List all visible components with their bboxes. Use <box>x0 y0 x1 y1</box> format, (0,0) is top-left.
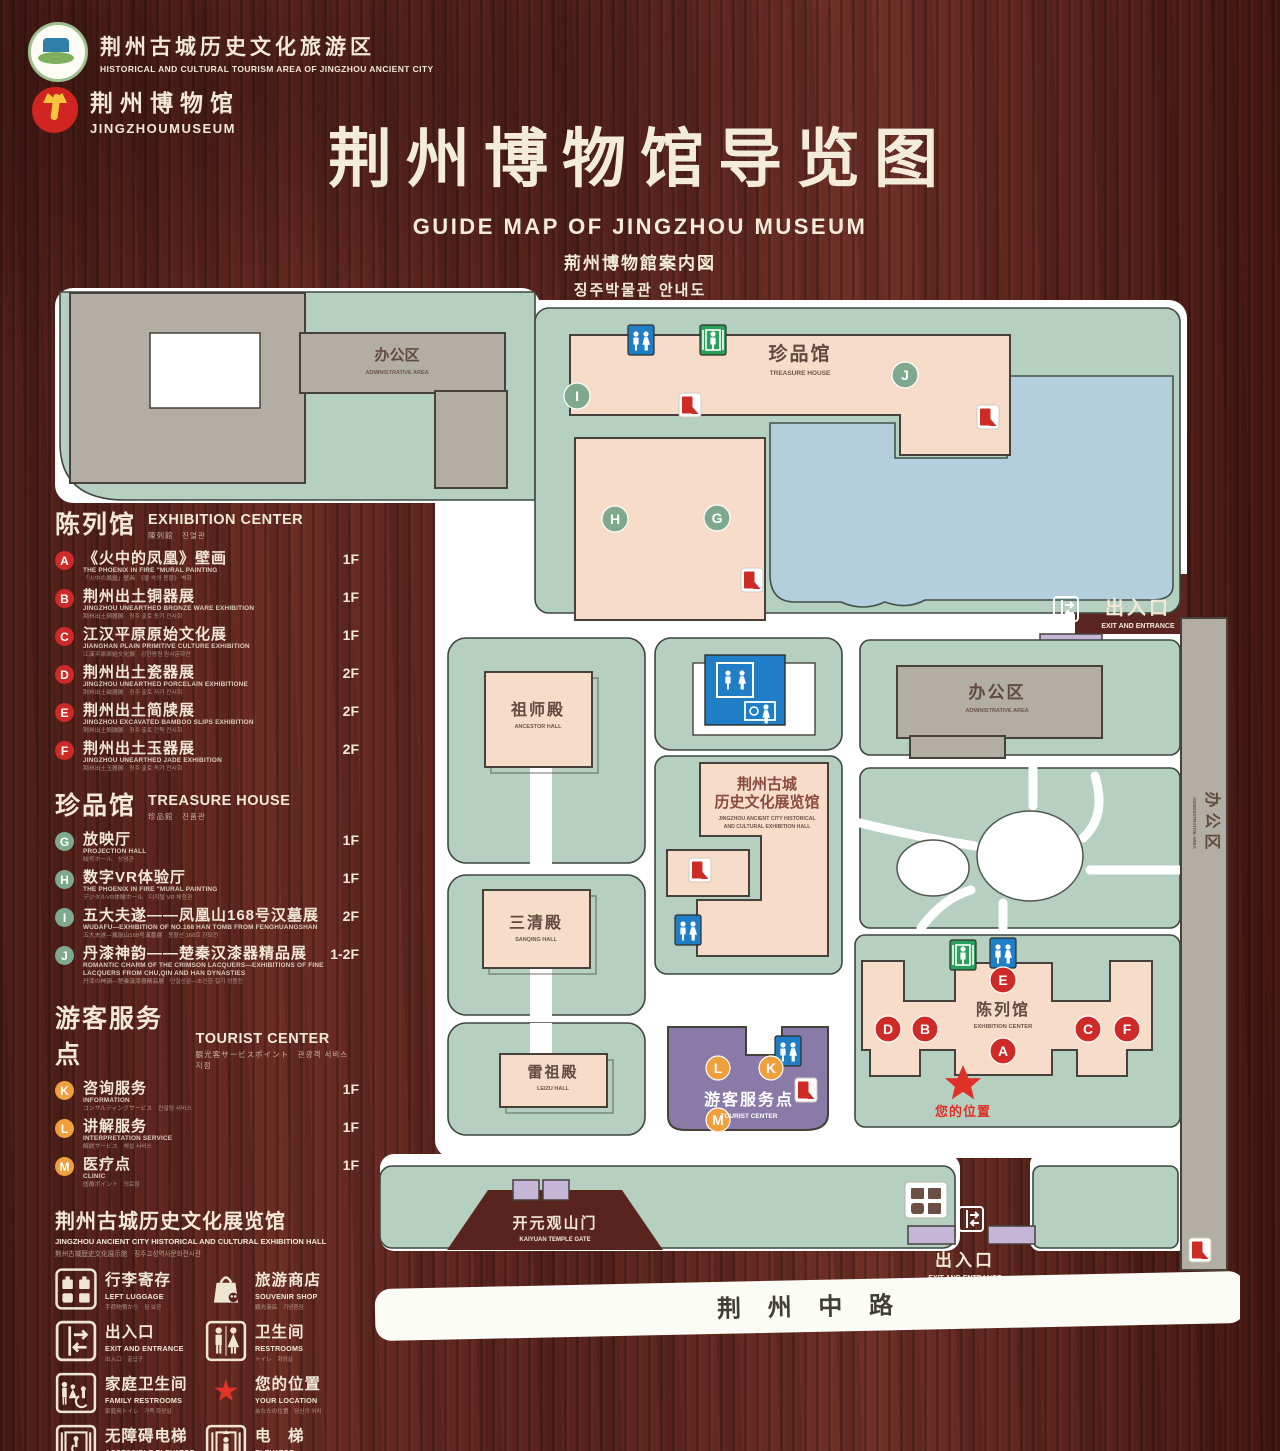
svg-text:J: J <box>901 367 909 383</box>
svg-text:开元观山门: 开元观山门 <box>512 1214 597 1232</box>
tourism-area-title: 荆州古城历史文化旅游区 <box>100 31 434 61</box>
jingzhou-middle-road: 荆 州 中 路 <box>375 1271 1240 1341</box>
ancient-city-exhibition-hall: 荆州古城 历史文化展览馆 JINGZHOU ANCIENT CITY HISTO… <box>655 756 842 974</box>
restroom-icon <box>628 325 654 355</box>
elevator-icon <box>700 325 726 355</box>
svg-text:D: D <box>883 1021 893 1037</box>
page-title-en: GUIDE MAP OF JINGZHOU MUSEUM <box>0 214 1280 240</box>
restroom-icon <box>675 915 701 945</box>
page-title: 荆州博物馆导览图 <box>0 108 1280 200</box>
symbol-zh: 电 梯 <box>255 1424 320 1446</box>
svg-text:F: F <box>1123 1021 1132 1037</box>
emergency-exit-icon <box>741 568 763 592</box>
svg-text:祖师殿: 祖师殿 <box>510 700 565 719</box>
emergency-exit-icon <box>977 405 999 429</box>
map-marker-k: K <box>759 1056 783 1080</box>
tourism-area-logo: 荆州古城历史文化旅游区 HISTORICAL AND CULTURAL TOUR… <box>28 22 434 82</box>
symbol-elevator: 电 梯 ELEVATOR エレベーター 엘리베이터 <box>205 1424 359 1451</box>
map-marker-m: M <box>706 1108 730 1132</box>
path-corridor <box>530 767 552 864</box>
admin-strip-east: 办公区 ADMINISTRATIVE AREA <box>1181 618 1227 1270</box>
svg-text:ADMINISTRATIVE AREA: ADMINISTRATIVE AREA <box>965 708 1028 714</box>
map-marker-j: J <box>892 362 918 388</box>
svg-text:G: G <box>712 510 723 526</box>
svg-text:E: E <box>998 972 1007 988</box>
symbol-family-restrooms: 家庭卫生间 FAMILY RESTROOMS 家庭用トイレ 가족 화장실 <box>55 1372 205 1415</box>
emergency-exit-icon <box>1189 1238 1211 1262</box>
symbol-your-location: ★ 您的位置 YOUR LOCATION あなたの位置 당신의 위치 <box>205 1372 359 1415</box>
svg-text:历史文化展览馆: 历史文化展览馆 <box>714 793 819 811</box>
svg-text:JINGZHOU ANCIENT CITY HISTORIC: JINGZHOU ANCIENT CITY HISTORICAL <box>718 816 816 822</box>
svg-text:L: L <box>714 1060 723 1076</box>
svg-text:办公区: 办公区 <box>374 346 419 364</box>
leizu-hall: 雷祖殿 LEIZU HALL <box>500 1054 613 1113</box>
svg-text:EXHIBITION CENTER: EXHIBITION CENTER <box>974 1024 1033 1030</box>
path-corridor <box>530 1023 552 1055</box>
tourism-area-emblem-icon <box>28 22 88 82</box>
emergency-exit-icon <box>795 1078 817 1102</box>
svg-text:AND CULTURAL EXHIBITION HALL: AND CULTURAL EXHIBITION HALL <box>724 824 812 830</box>
page-title-ja: 荊州博物館案内図 <box>0 249 1280 274</box>
svg-text:KAIYUAN TEMPLE GATE: KAIYUAN TEMPLE GATE <box>519 1237 590 1243</box>
symbol-en: FAMILY RESTROOMS <box>105 1396 188 1405</box>
svg-text:雷祖殿: 雷祖殿 <box>527 1063 578 1081</box>
symbol-zh: 您的位置 <box>255 1372 321 1394</box>
svg-text:荆州古城: 荆州古城 <box>737 775 797 793</box>
title-block: 荆州博物馆导览图 GUIDE MAP OF JINGZHOU MUSEUM 荊州… <box>0 108 1280 300</box>
svg-text:A: A <box>998 1043 1008 1059</box>
svg-text:H: H <box>610 511 620 527</box>
symbol-en: YOUR LOCATION <box>255 1396 321 1405</box>
svg-text:珍品馆: 珍品馆 <box>768 342 831 365</box>
svg-text:办公区: 办公区 <box>969 682 1026 702</box>
guide-map-sign: 荆州古城历史文化旅游区 HISTORICAL AND CULTURAL TOUR… <box>0 0 1280 1451</box>
garden <box>860 768 1180 928</box>
symbol-sub: 出入口 출입구 <box>105 1355 184 1363</box>
map-marker-h: H <box>602 506 628 532</box>
symbol-accessible-elevator: 无障碍电梯 ACCESSIBLE ELEVATOR バリアフリーエレベーター 무… <box>55 1424 205 1451</box>
map-marker-c: C <box>1075 1016 1101 1042</box>
svg-text:TOURIST CENTER: TOURIST CENTER <box>721 1113 778 1120</box>
emergency-exit-icon <box>689 858 711 882</box>
ancestor-hall: 祖师殿 ANCESTOR HALL <box>485 672 598 773</box>
svg-text:ANCESTOR HALL: ANCESTOR HALL <box>515 724 563 730</box>
elevator-icon <box>205 1424 247 1451</box>
symbol-zh: 家庭卫生间 <box>105 1372 188 1394</box>
map-marker-f: F <box>1114 1016 1140 1042</box>
exit-south: 出入口 EXIT AND ENTRANCE <box>905 1182 1035 1282</box>
restroom-icon <box>990 938 1016 968</box>
grounds-south-east <box>1033 1166 1178 1248</box>
elevator-icon <box>950 940 976 970</box>
central-restroom-block <box>655 638 842 750</box>
map-marker-i: I <box>564 383 590 409</box>
map-marker-a: A <box>990 1038 1016 1064</box>
svg-text:ADMINISTRATIVE AREA: ADMINISTRATIVE AREA <box>1192 797 1197 850</box>
svg-text:出入口: 出入口 <box>1105 596 1171 619</box>
family-restrooms-icon <box>55 1372 97 1414</box>
svg-text:I: I <box>575 388 579 404</box>
svg-text:办公区: 办公区 <box>1203 791 1222 854</box>
svg-text:出入口: 出入口 <box>935 1250 995 1270</box>
svg-text:SANQING HALL: SANQING HALL <box>515 937 558 943</box>
symbol-sub: あなたの位置 당신의 위치 <box>255 1407 321 1415</box>
map-marker-d: D <box>875 1016 901 1042</box>
sanqing-hall: 三清殿 SANQING HALL <box>483 890 596 974</box>
emergency-exit-icon <box>679 393 701 417</box>
your-location-star-icon: ★ <box>205 1372 247 1414</box>
tourism-area-subtitle: HISTORICAL AND CULTURAL TOURISM AREA OF … <box>100 64 434 74</box>
svg-text:陈列馆: 陈列馆 <box>976 1000 1030 1019</box>
svg-text:LEIZU HALL: LEIZU HALL <box>537 1086 570 1092</box>
map-marker-g: G <box>704 505 730 531</box>
svg-text:ADMINISTRATIVE AREA: ADMINISTRATIVE AREA <box>365 370 428 376</box>
svg-text:您的位置: 您的位置 <box>935 1104 991 1119</box>
svg-text:EXIT AND ENTRANCE: EXIT AND ENTRANCE <box>1101 623 1175 630</box>
symbol-sub: トイレ 화장실 <box>255 1355 305 1363</box>
svg-text:三清殿: 三清殿 <box>509 914 563 932</box>
path-corridor <box>530 968 552 1016</box>
svg-text:荆 州 中 路: 荆 州 中 路 <box>717 1291 904 1323</box>
symbol-zh: 无障碍电梯 <box>105 1424 205 1446</box>
svg-text:游客服务点: 游客服务点 <box>704 1090 794 1109</box>
svg-text:B: B <box>920 1021 930 1037</box>
exhibition-center-building: 陈列馆 EXHIBITION CENTER E D B C F A 您的位置 <box>855 935 1180 1127</box>
accessible-elevator-icon <box>55 1424 97 1451</box>
svg-text:TREASURE HOUSE: TREASURE HOUSE <box>770 370 831 377</box>
map-marker-l: L <box>706 1056 730 1080</box>
museum-floor-map: 办公区 ADMINISTRATIVE AREA 珍品馆 TREASURE HOU… <box>45 278 1240 1350</box>
svg-text:K: K <box>766 1060 776 1076</box>
symbol-sub: 家庭用トイレ 가족 화장실 <box>105 1407 188 1415</box>
map-marker-b: B <box>912 1016 938 1042</box>
svg-text:C: C <box>1083 1021 1093 1037</box>
map-marker-e: E <box>990 967 1016 993</box>
